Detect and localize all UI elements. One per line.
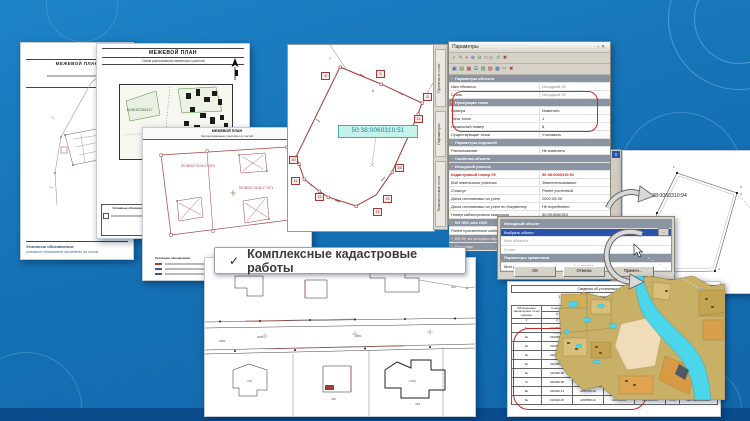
parameters-panel: Параметры ▫✕ ✓✎+⊕⊖□▷↺✖ ▣▤▦☰▧▨▩✂✖ −Параме… <box>448 41 611 225</box>
vertex-label: 15 <box>383 195 392 203</box>
cadastral-number-label: 50:38:0060310:94 <box>645 193 687 199</box>
vertex-label: 12 <box>414 115 423 123</box>
toolbar-row-2: ▣▤▦☰▧▨▩✂✖ <box>449 64 610 75</box>
dialog-row[interactable]: Имя объекта <box>501 237 671 246</box>
toolbar-icon[interactable]: ▤ <box>459 67 464 72</box>
doc-header: МЕЖЕВОЙ ПЛАН Чертеж земельных участков и… <box>143 128 311 140</box>
toolbar-icon[interactable]: ⊕ <box>471 56 475 61</box>
toolbar-icon[interactable]: ▣ <box>452 67 457 72</box>
toolbar-icon[interactable]: ✂ <box>502 67 506 72</box>
toolbar-icon[interactable]: ✖ <box>503 56 507 61</box>
grid-row[interactable]: СтильИсходный ЗУ <box>449 91 610 99</box>
close-icon[interactable]: ✕ <box>601 44 607 49</box>
grid-row[interactable]: Имя объектаИсходный ЗУ <box>449 83 610 91</box>
plan-label: 434 <box>415 402 420 406</box>
browse-button[interactable]: … <box>658 228 669 236</box>
parcels-drawing: 50:38:0071104:17:ЗУ2 50:38:0071104:17:ЗУ… <box>147 141 307 247</box>
select-object-row[interactable]: Выбрать объект… <box>501 229 671 238</box>
toolbar-icon[interactable]: ✓ <box>452 56 456 61</box>
grid-row[interactable]: Дата постановки на учет2002-09-09 <box>449 195 610 203</box>
decor-circle <box>46 0 118 42</box>
grid-row[interactable]: Кадастровый номер ЗУ50:38:0060310:51 <box>449 171 610 179</box>
toolbar-icon[interactable]: ▨ <box>488 67 493 72</box>
source-object-dialog: Исходный объект Выбрать объект… Имя объе… <box>497 216 675 280</box>
slide-canvas: МЕЖЕВОЙ ПЛАН Условные обозначения: услов… <box>0 0 750 421</box>
panel-title: Параметры <box>452 44 479 50</box>
ok-button[interactable]: ОК <box>514 266 556 277</box>
dialog-grid: Исходный объект Выбрать объект… Имя объе… <box>500 219 672 272</box>
parcel-polygon-drawing <box>288 45 434 231</box>
vertex-label: 5 <box>423 93 432 101</box>
vertex-label: 8 <box>321 72 330 80</box>
parcel-number-label: 50:38:0071104:17 <box>127 108 153 112</box>
plan-label: 435 <box>331 397 336 401</box>
vertex-label: 11 <box>291 177 300 185</box>
vertex-label: 9 <box>376 70 385 78</box>
side-tab-strip: Проекты и слои Параметры Тематические сл… <box>433 44 448 230</box>
caption-label: Комплексные кадастровые работы <box>247 247 465 275</box>
point-number: 2 <box>740 185 742 189</box>
toolbar-icon[interactable]: ☰ <box>474 67 478 72</box>
grid-row[interactable]: Начальный номер8 <box>449 123 610 131</box>
gis-map-panel[interactable]: 9 8 5 12 16 15 14 13 11 10 7 6 50:38:006… <box>287 44 435 232</box>
toolbar-icon[interactable]: ↺ <box>496 56 500 61</box>
toolbar-icon[interactable]: ▦ <box>466 67 471 72</box>
vertex-label: 10 <box>289 156 298 164</box>
grid-row[interactable]: НомераИзменить <box>449 107 610 115</box>
toolbar-icon[interactable]: □ <box>484 56 487 61</box>
grid-section[interactable]: −Свойства объекта <box>449 155 610 163</box>
toolbar-icon[interactable]: ✖ <box>509 67 513 72</box>
tab-parameters[interactable]: Параметры <box>435 111 446 157</box>
toolbar-icon[interactable]: ▩ <box>495 67 500 72</box>
plan-label: 2981 <box>355 334 362 338</box>
tab-thematic-layers[interactable]: Тематические слои <box>435 161 446 227</box>
linear-plan-sheet: 2981 2991 2981 1041 421 715 435 434 1220 <box>204 257 476 417</box>
dialog-section: Исходный объект <box>501 220 671 229</box>
vertex-label: 13 <box>315 193 324 201</box>
cadastral-color-map <box>553 276 725 400</box>
north-arrow-icon <box>230 58 240 84</box>
toolbar-icon[interactable]: ▧ <box>481 67 486 72</box>
toolbar-icon[interactable]: ✎ <box>459 56 463 61</box>
plan-label: 1220 <box>409 379 416 383</box>
doc-title: МЕЖЕВОЙ ПЛАН <box>102 49 244 58</box>
grid-row[interactable]: Дата постановки на учет по документуНе о… <box>449 203 610 211</box>
parcel-zu2-label: 50:38:0071104:17:ЗУ2 <box>181 164 215 168</box>
legend-title: Условные обозначения <box>155 256 190 260</box>
dialog-section: Параметры сравнения <box>501 254 671 263</box>
checkmark-icon: ✓ <box>229 254 239 268</box>
doc-subtitle: Чертеж земельных участков и их частей <box>143 133 311 139</box>
grid-row[interactable]: СтатусРанее учтенный <box>449 187 610 195</box>
grid-row[interactable]: Существующие точкиУчитывать <box>449 131 610 139</box>
legend-note: условные обозначения приведены на листе <box>26 250 128 254</box>
grid-row[interactable]: РасположениеНе изменять <box>449 147 610 155</box>
point-number: 1 <box>673 165 675 169</box>
toolbar-icon[interactable]: ⊖ <box>478 56 482 61</box>
legend-symbol <box>103 213 109 219</box>
grid-section[interactable]: −Параметры объекта <box>449 75 610 83</box>
parcel-zu1-label: 50:38:0071104:17:ЗУ1 <box>239 186 273 190</box>
grid-row[interactable]: Вид земельного участкаЗемлепользование <box>449 179 610 187</box>
linear-plan-drawing: 2981 2991 2981 1041 421 715 435 434 1220 <box>205 258 475 416</box>
panel-titlebar[interactable]: Параметры ▫✕ <box>449 42 610 53</box>
point-mark: 7 <box>329 57 331 61</box>
close-icon[interactable]: ✕ <box>612 151 620 158</box>
dialog-row[interactable]: Стиль <box>501 246 671 255</box>
vertex-label: 14 <box>373 208 382 216</box>
grid-section[interactable]: −Нумерация точек <box>449 99 610 107</box>
doc-subtitle: Схема расположения земельных участков <box>102 58 244 64</box>
toolbar-row-1: ✓✎+⊕⊖□▷↺✖ <box>449 53 610 64</box>
toolbar-icon[interactable]: + <box>465 56 468 61</box>
tab-projects-layers[interactable]: Проекты и слои <box>435 49 446 107</box>
plan-label: 715 <box>247 379 252 383</box>
plan-label: 2991 <box>257 335 264 339</box>
doc-header: МЕЖЕВОЙ ПЛАН Схема расположения земельны… <box>102 48 244 65</box>
grid-section[interactable]: −Параметры подписей <box>449 139 610 147</box>
point-number: 4 <box>718 267 720 271</box>
legend-block: Условные обозначения: условные обозначен… <box>26 241 128 255</box>
caption-panel: ✓ Комплексные кадастровые работы <box>214 247 466 274</box>
vertex-label: 16 <box>395 164 404 172</box>
legend-title: Условные обозначения: <box>26 244 128 249</box>
grid-section[interactable]: −Исходный участок <box>449 163 610 171</box>
plan-label: 421 <box>451 285 456 289</box>
cadastral-number-highlight[interactable]: 50:38:0060310:51 <box>338 125 418 138</box>
point-number: 3 <box>740 192 742 196</box>
toolbar-icon[interactable]: ▷ <box>490 56 494 61</box>
grid-row[interactable]: Типы точек1 <box>449 115 610 123</box>
point-mark: 6 <box>372 89 374 93</box>
plan-label: 2981 <box>219 339 226 343</box>
